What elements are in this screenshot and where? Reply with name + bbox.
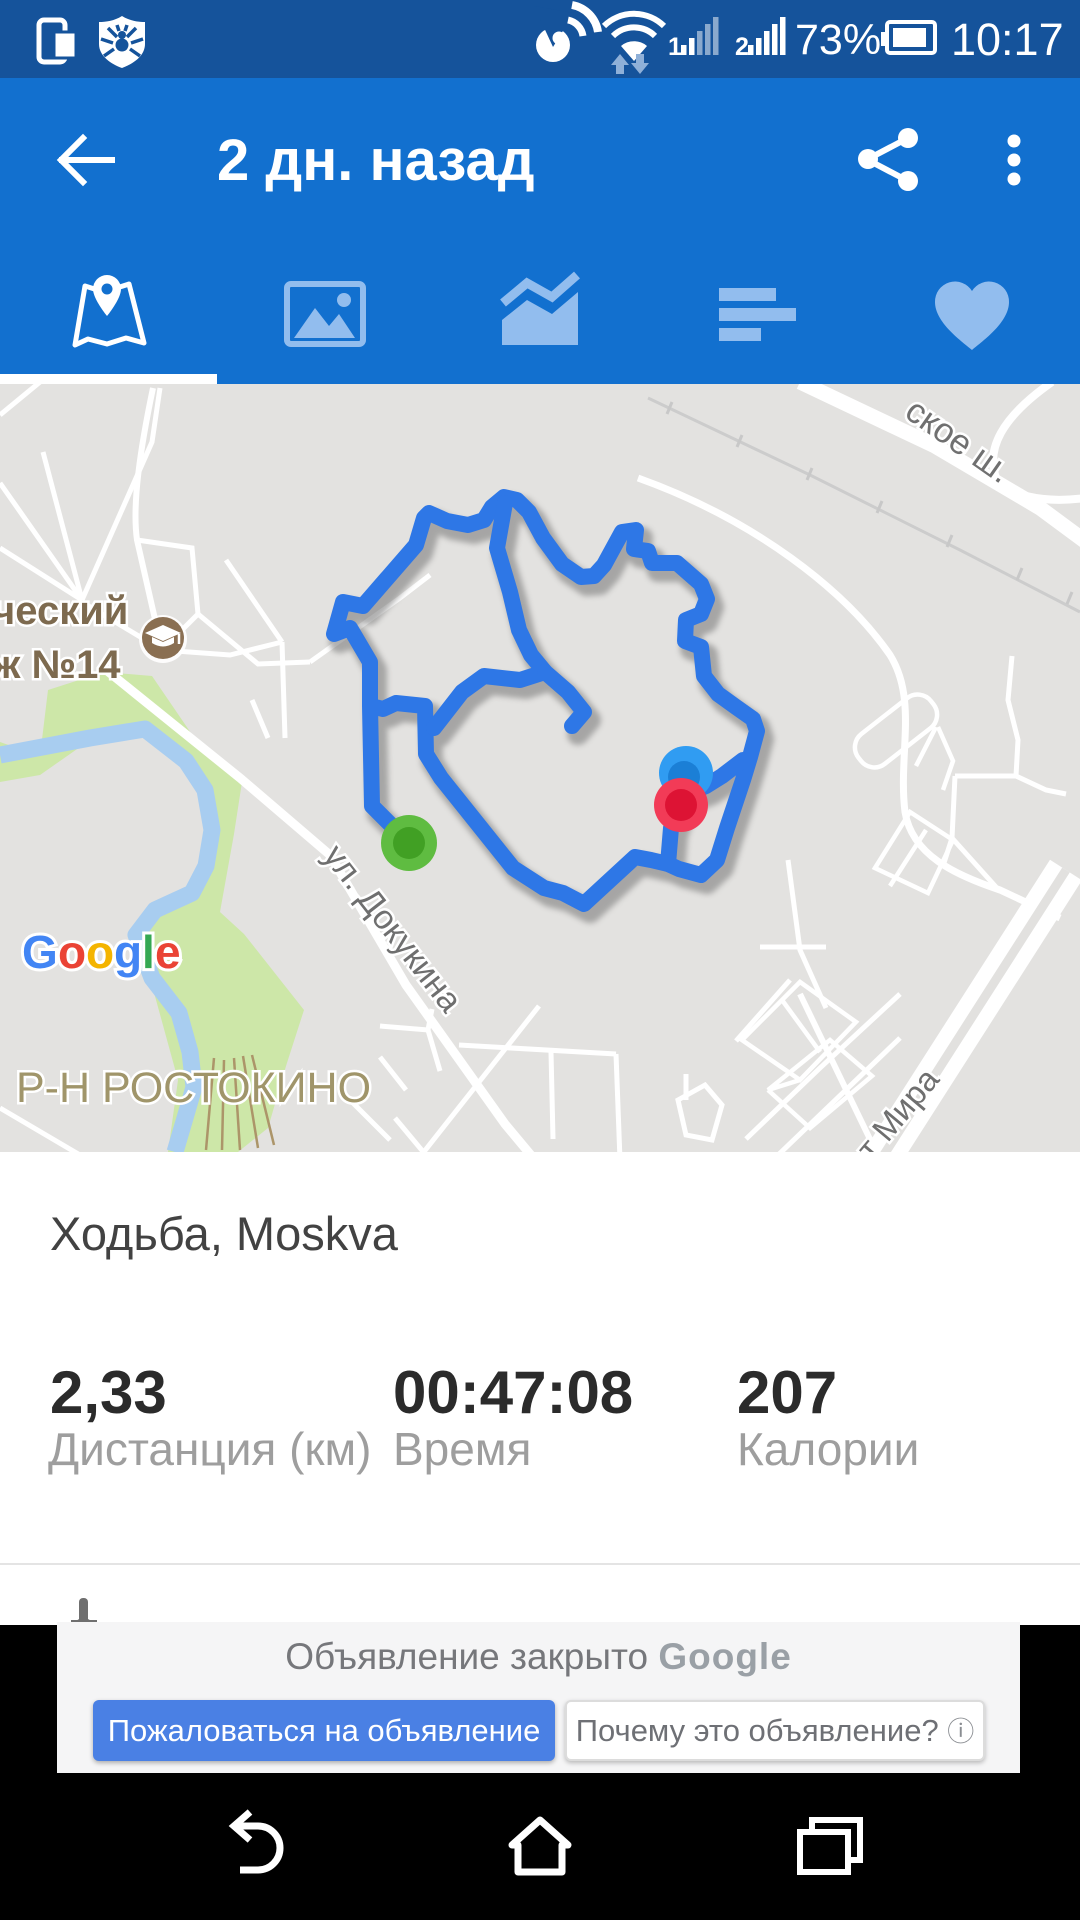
- svg-text:e: e: [155, 926, 181, 978]
- svg-text:ческий: ческий: [0, 589, 128, 633]
- svg-text:2: 2: [735, 33, 749, 61]
- svg-text:1: 1: [668, 33, 682, 61]
- svg-text:ж №14: ж №14: [0, 643, 121, 687]
- svg-text:o: o: [86, 926, 114, 978]
- svg-text:l: l: [142, 926, 155, 978]
- svg-text:Р-Н РОСТОКИНО: Р-Н РОСТОКИНО: [16, 1064, 371, 1112]
- svg-text:G: G: [22, 926, 58, 978]
- svg-text:o: o: [58, 926, 86, 978]
- svg-text:g: g: [114, 926, 142, 978]
